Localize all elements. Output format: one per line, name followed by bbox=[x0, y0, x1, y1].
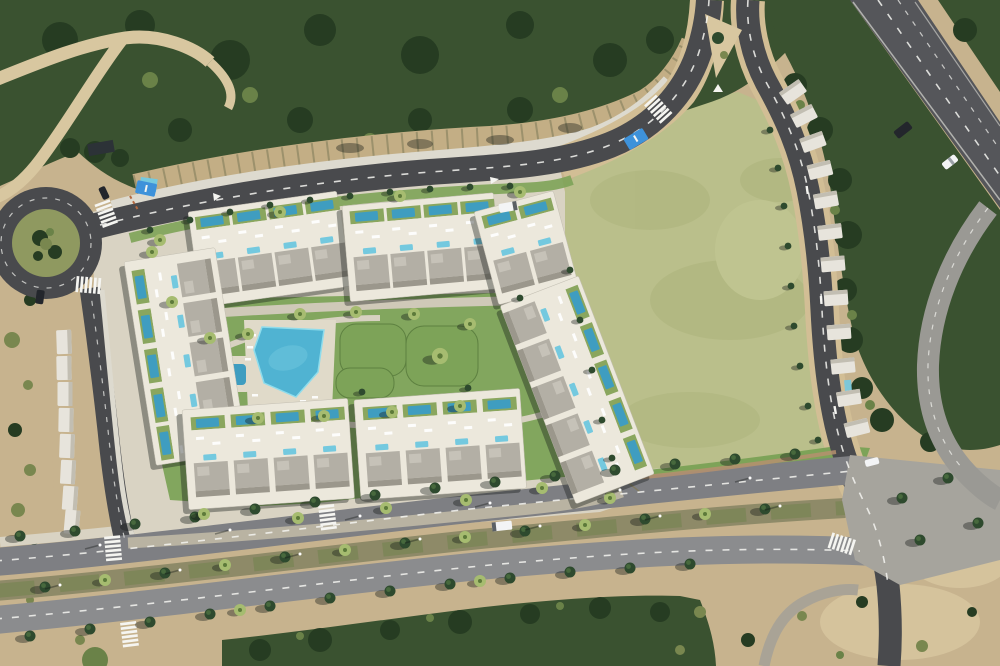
carport bbox=[59, 434, 75, 459]
carport bbox=[62, 486, 79, 511]
carport bbox=[830, 357, 855, 374]
carport bbox=[58, 408, 73, 432]
carport bbox=[817, 223, 843, 241]
carport bbox=[58, 382, 73, 406]
carport bbox=[824, 290, 849, 307]
carport bbox=[60, 460, 76, 485]
satellite-map[interactable]: Aerial satellite view of coastal villa d… bbox=[0, 0, 1000, 666]
carport bbox=[56, 330, 72, 355]
carport bbox=[56, 356, 71, 380]
carport bbox=[827, 324, 852, 341]
carport bbox=[820, 255, 845, 272]
villa-block-north-2 bbox=[336, 193, 502, 306]
aerial-photo: Aerial satellite view of coastal villa d… bbox=[0, 0, 1000, 666]
